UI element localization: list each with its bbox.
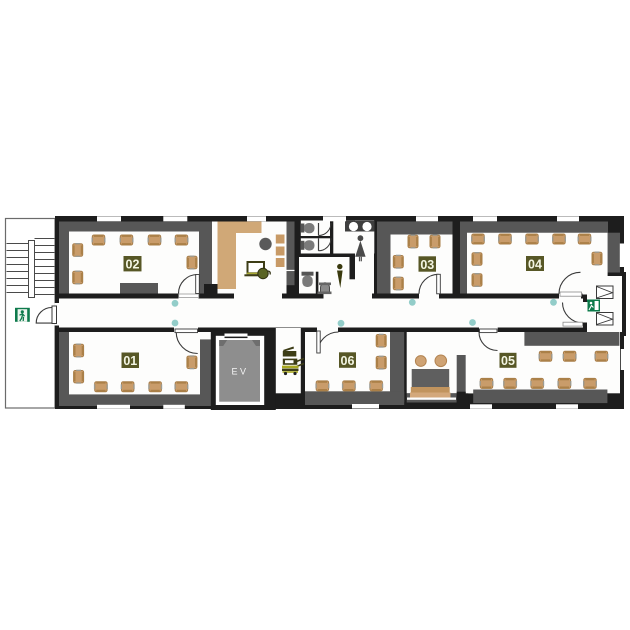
svg-text:06: 06 — [341, 354, 355, 368]
svg-text:01: 01 — [123, 354, 137, 368]
svg-text:04: 04 — [528, 257, 542, 271]
svg-text:02: 02 — [126, 258, 140, 272]
svg-text:EV: EV — [231, 367, 248, 377]
svg-text:05: 05 — [501, 354, 515, 368]
svg-text:03: 03 — [420, 258, 434, 272]
